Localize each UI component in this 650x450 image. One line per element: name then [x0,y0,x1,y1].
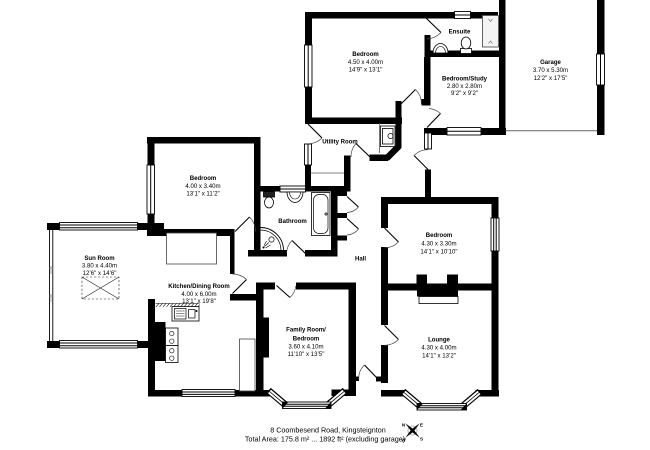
svg-text:4.00 x 6.00m: 4.00 x 6.00m [181,291,216,298]
svg-text:12’6" x 14’6": 12’6" x 14’6" [83,270,117,277]
svg-text:Hall: Hall [355,256,366,262]
svg-text:3.70 x 5.30m: 3.70 x 5.30m [533,67,568,74]
svg-text:13’1" x 11’2": 13’1" x 11’2" [186,190,219,197]
svg-text:4.50 x 4.00m: 4.50 x 4.00m [348,59,383,66]
svg-text:3.80 x 4.40m: 3.80 x 4.40m [82,262,117,269]
svg-text:Sun Room: Sun Room [84,256,114,262]
svg-text:Bedroom: Bedroom [426,233,453,239]
svg-text:Ensuite: Ensuite [449,30,471,36]
svg-text:Total Area: 175.8 m² ... 1892: Total Area: 175.8 m² ... 1892 ft² (exclu… [245,435,405,444]
svg-text:13’1" x 19’8": 13’1" x 19’8" [182,298,216,305]
svg-text:Bedroom: Bedroom [352,52,379,58]
svg-text:Bedroom/Study: Bedroom/Study [442,77,488,83]
svg-text:Kitchen/Dining Room: Kitchen/Dining Room [168,284,229,290]
svg-text:Bathroom: Bathroom [278,219,307,225]
svg-text:Utility Room: Utility Room [322,140,358,146]
svg-text:14’1" x 10’10": 14’1" x 10’10" [420,248,457,255]
svg-text:S: S [420,437,423,442]
svg-text:8 Coombesend Road, Kingsteignt: 8 Coombesend Road, Kingsteignton [270,425,385,434]
svg-text:12’2" x 17’5": 12’2" x 17’5" [534,75,568,82]
svg-text:4.30 x 3.30m: 4.30 x 3.30m [421,240,456,247]
svg-text:E: E [420,423,423,428]
svg-text:4.30 x 4.00m: 4.30 x 4.00m [421,344,456,351]
svg-text:2.80 x 2.80m: 2.80 x 2.80m [447,83,482,90]
svg-text:Bedroom: Bedroom [190,176,217,182]
svg-text:11’10" x 13’5": 11’10" x 13’5" [288,351,325,358]
svg-text:9’2" x 9’2": 9’2" x 9’2" [451,90,478,97]
svg-text:4.00 x 3.40m: 4.00 x 3.40m [185,183,220,190]
svg-text:Lounge: Lounge [428,337,450,343]
svg-text:W: W [401,438,406,443]
svg-text:3.60 x 4.10m: 3.60 x 4.10m [288,343,323,350]
svg-text:Garage: Garage [540,60,561,66]
svg-text:14’9" x 13’1": 14’9" x 13’1" [349,66,383,73]
svg-text:Family Room/: Family Room/ [286,327,326,333]
svg-text:14’1" x 13’2": 14’1" x 13’2" [422,352,456,359]
svg-text:Bedroom: Bedroom [293,336,320,342]
